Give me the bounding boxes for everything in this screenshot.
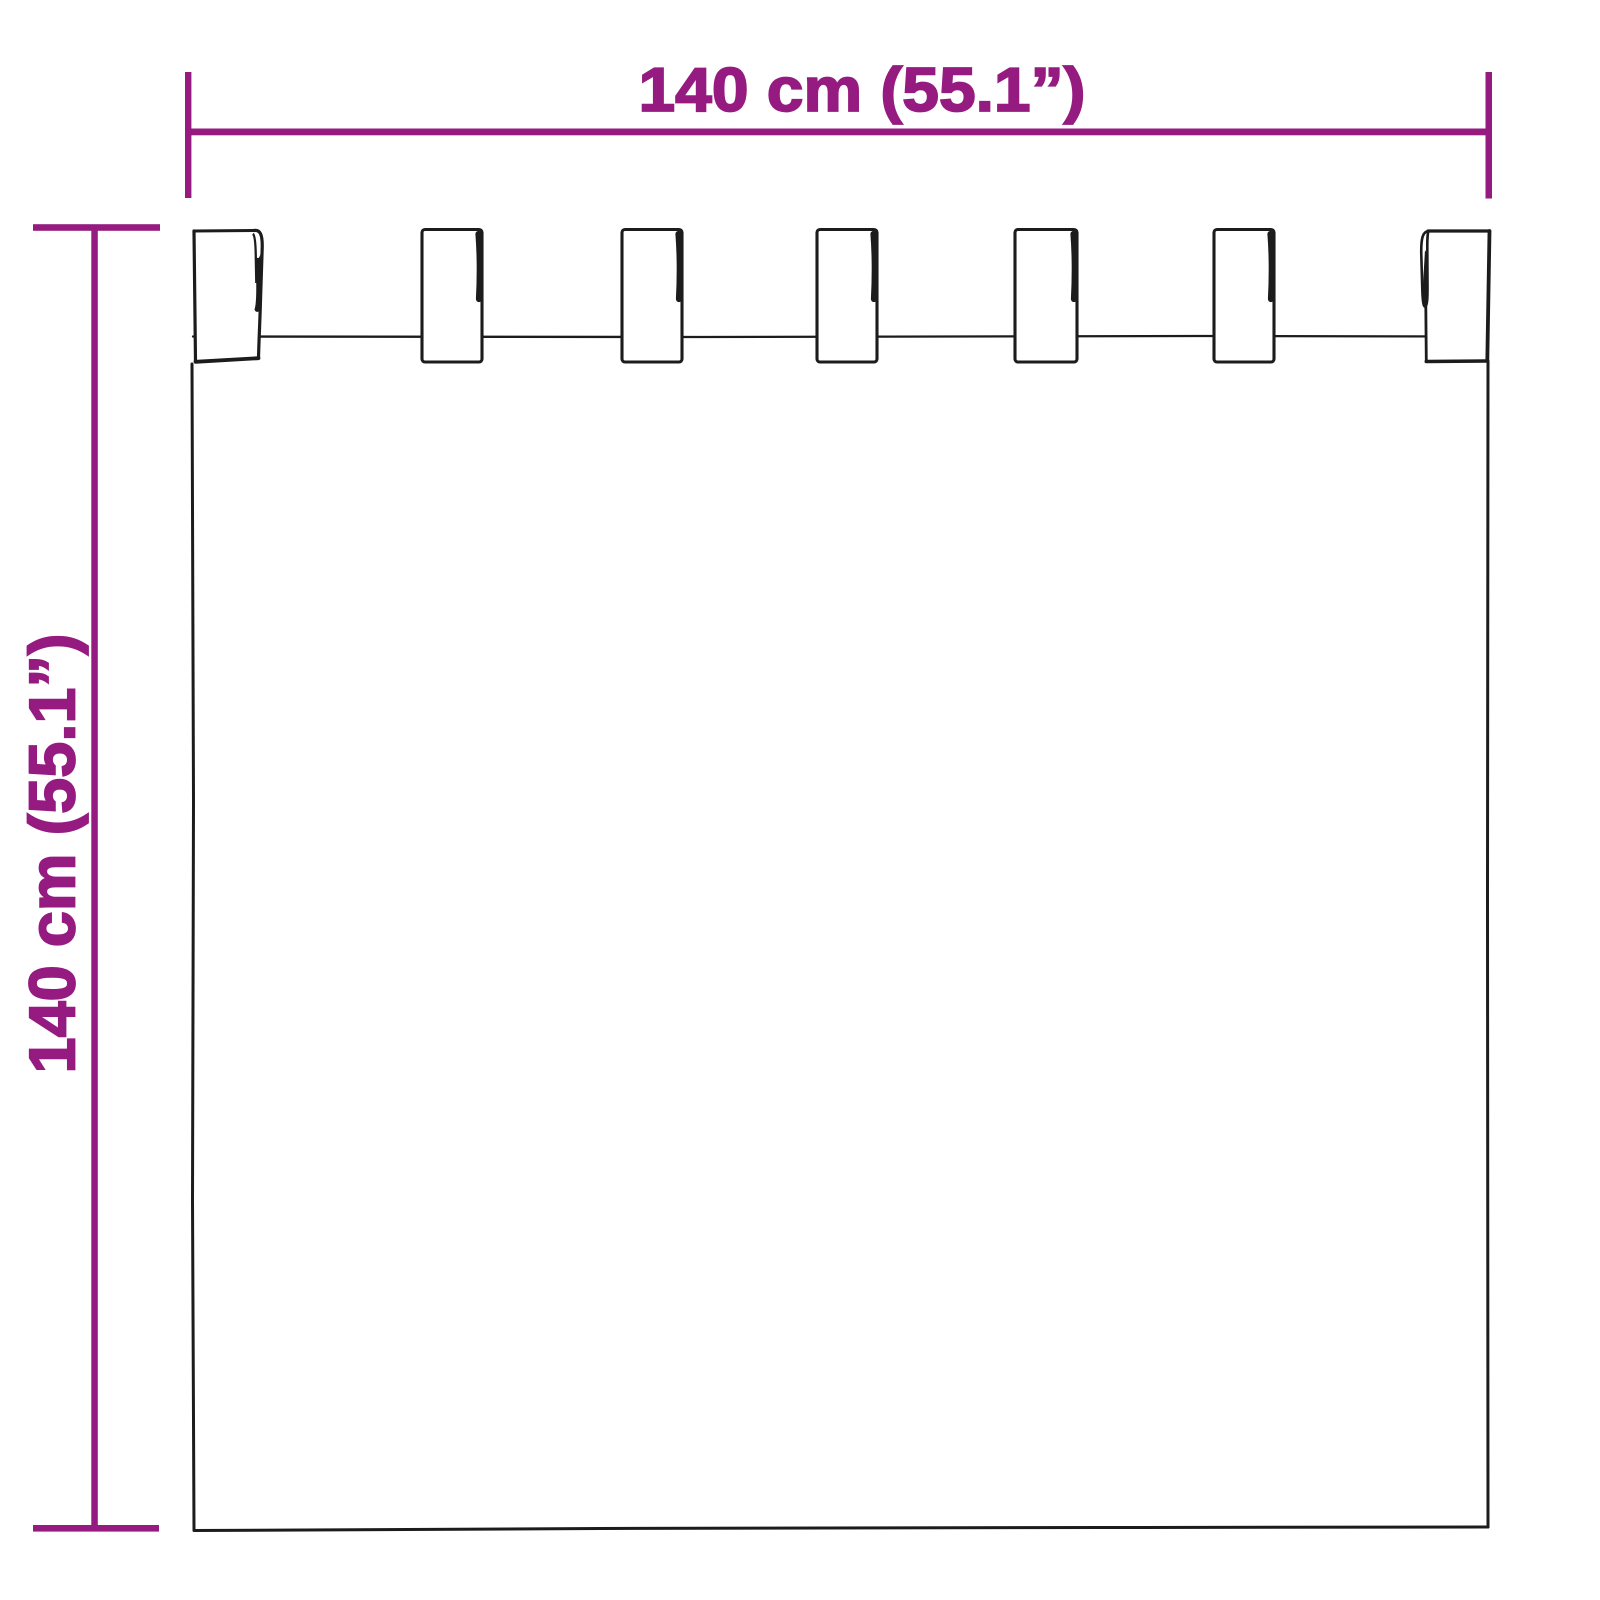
svg-text:140 cm (55.1”): 140 cm (55.1”) — [16, 634, 89, 1074]
svg-text:140 cm (55.1”): 140 cm (55.1”) — [639, 55, 1086, 125]
